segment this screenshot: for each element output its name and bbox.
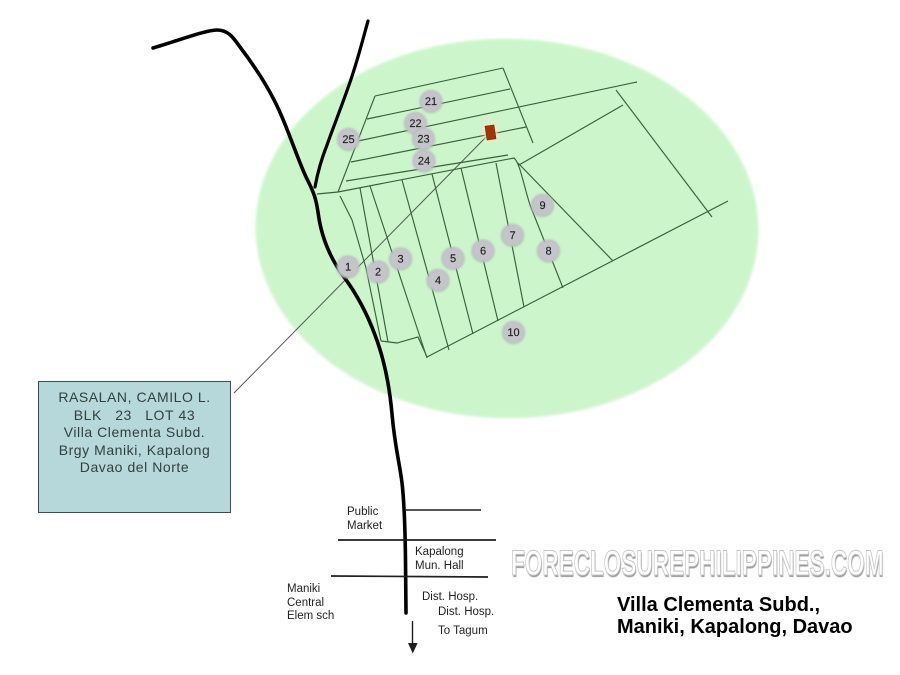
svg-text:21: 21 xyxy=(425,96,437,108)
svg-text:4: 4 xyxy=(435,275,441,287)
svg-text:24: 24 xyxy=(418,156,430,168)
svg-text:2: 2 xyxy=(375,267,381,279)
svg-text:10: 10 xyxy=(507,327,519,339)
svg-text:23: 23 xyxy=(417,134,429,146)
svg-text:25: 25 xyxy=(342,134,354,146)
svg-text:3: 3 xyxy=(397,254,403,266)
svg-text:7: 7 xyxy=(509,230,515,242)
svg-text:5: 5 xyxy=(450,253,456,265)
svg-text:9: 9 xyxy=(539,200,545,212)
svg-text:6: 6 xyxy=(480,246,486,258)
svg-text:8: 8 xyxy=(545,246,551,258)
svg-text:1: 1 xyxy=(345,262,351,274)
